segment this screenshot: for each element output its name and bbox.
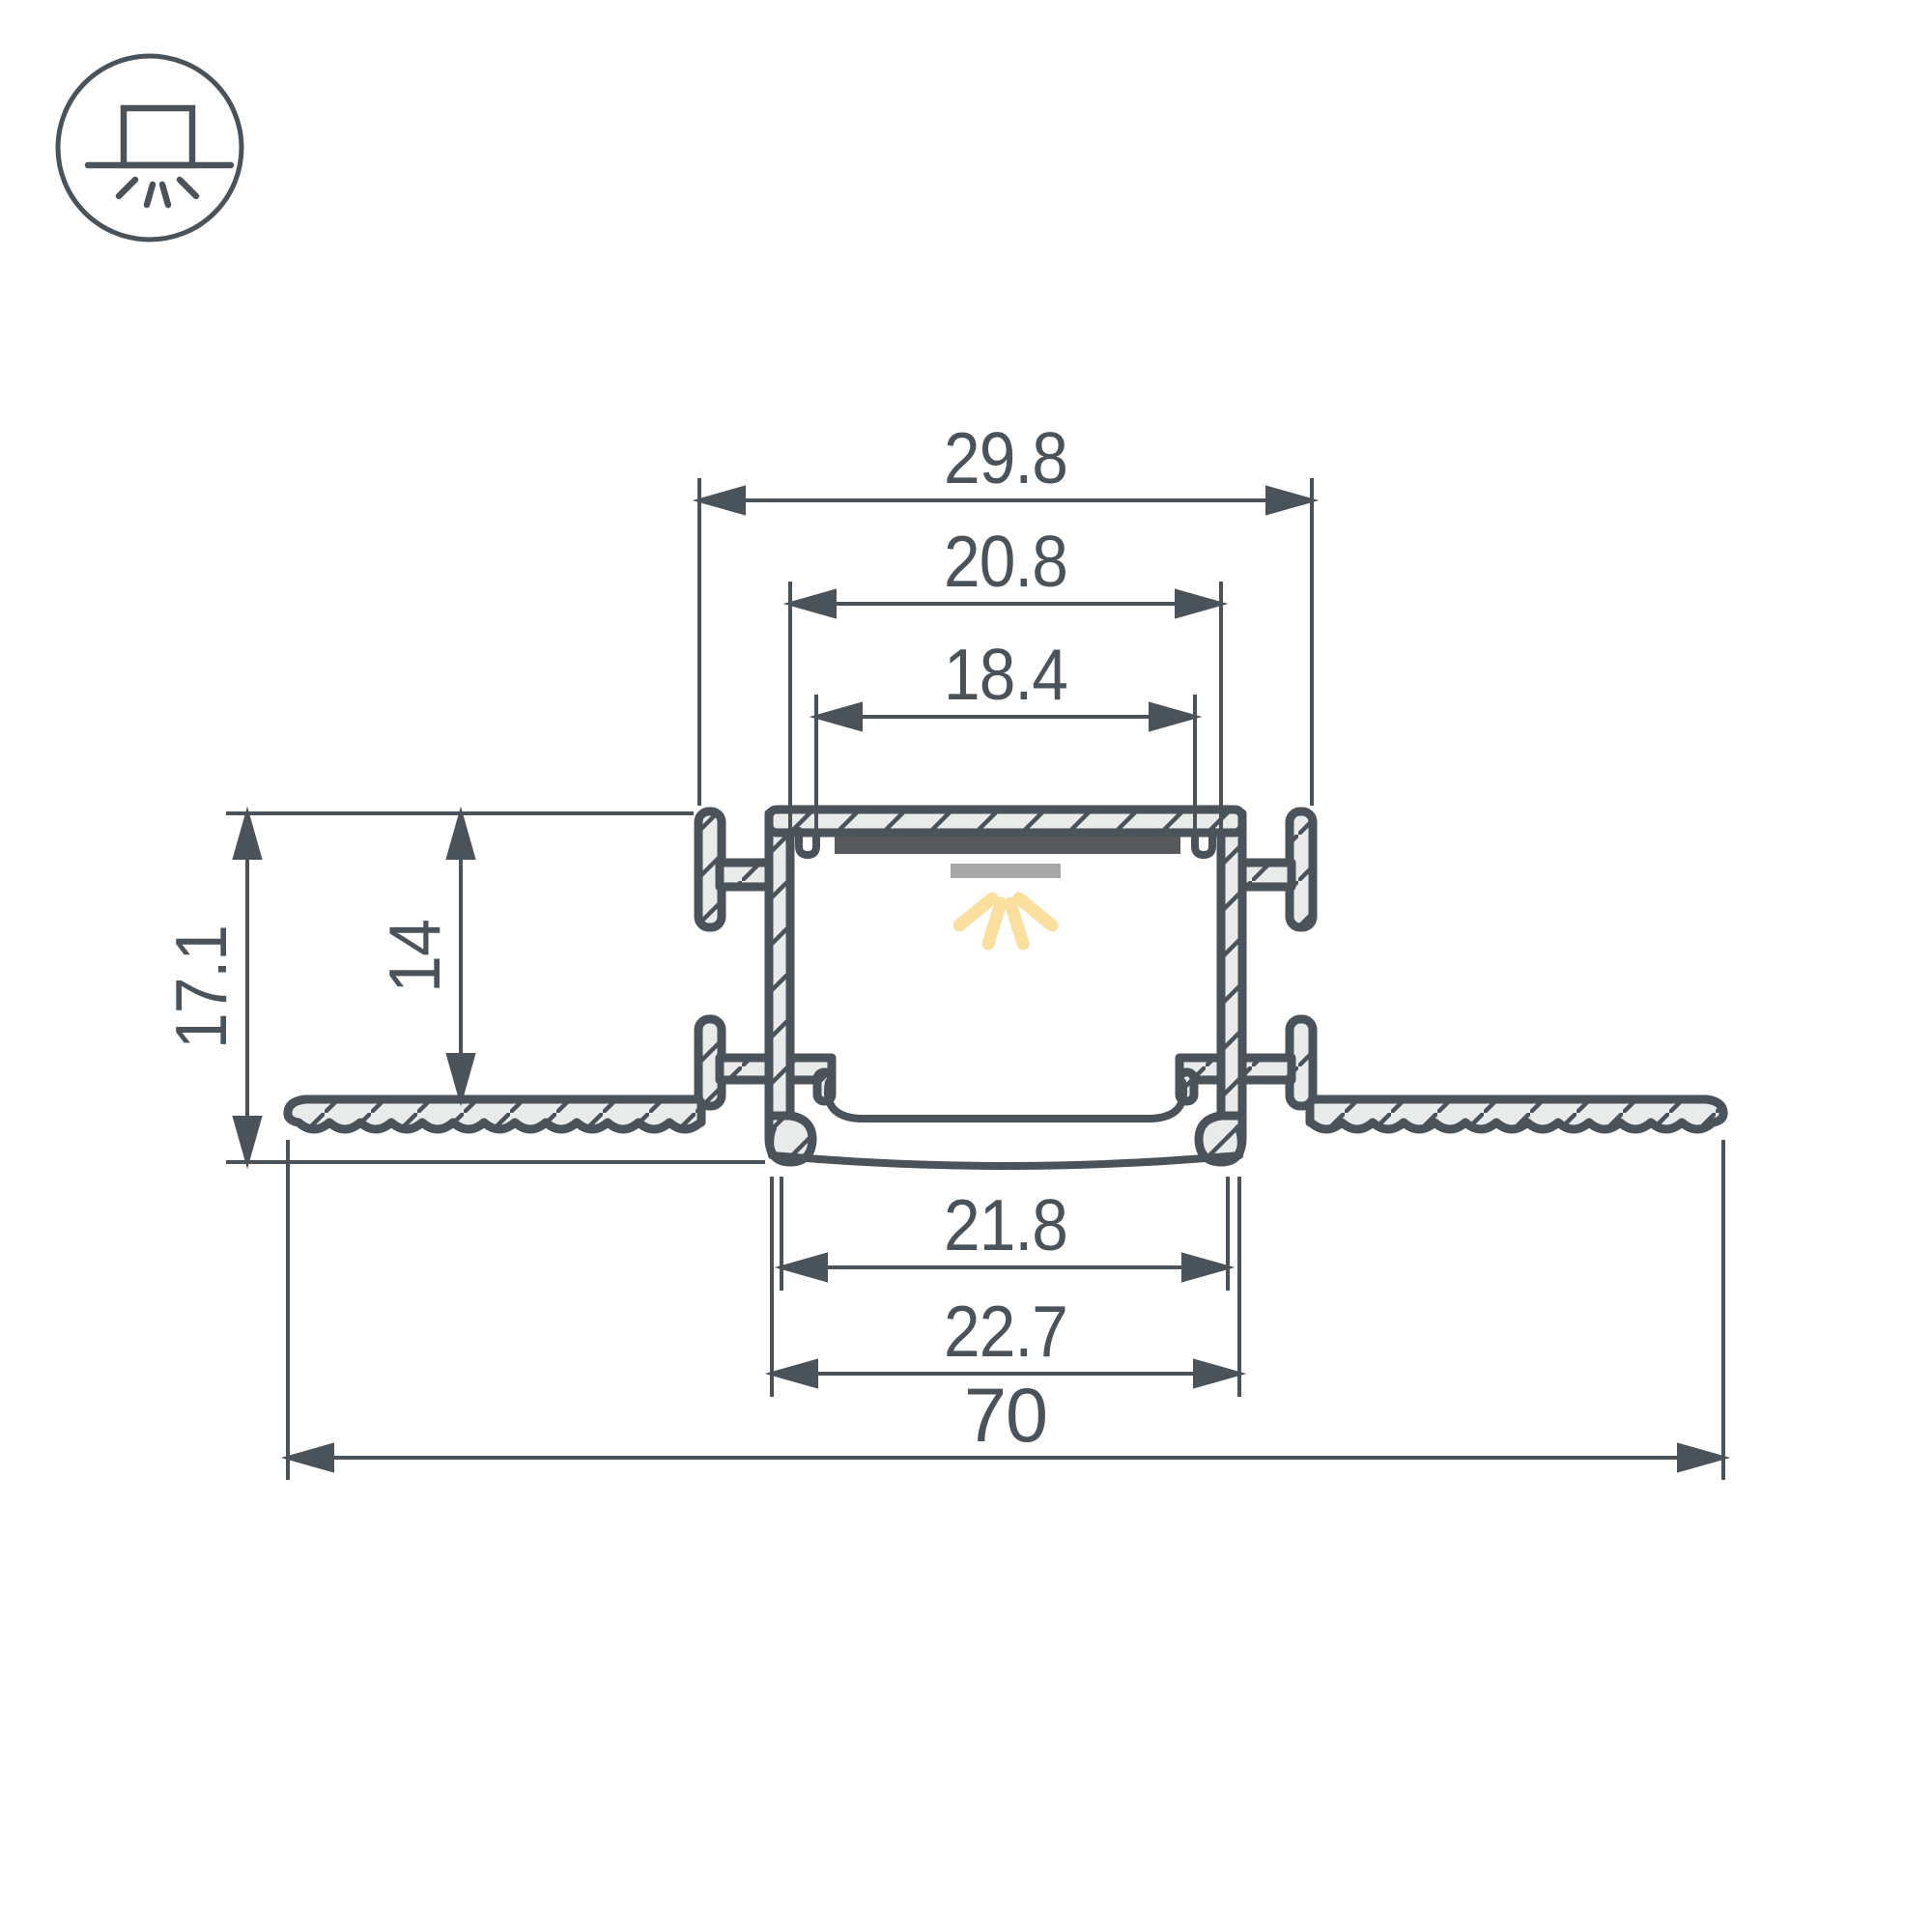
drawing-canvas: 29.8 20.8 18.4 17.1 14 21.8 22.7 70 (0, 0, 1932, 1932)
diffuser (770, 1082, 1241, 1166)
pcb-strip (835, 837, 1180, 854)
led-assembly (835, 837, 1180, 944)
label-recess-depth: 14 (374, 920, 455, 993)
label-lip-outer-width: 22.7 (944, 1291, 1067, 1372)
dimension-labels: 29.8 20.8 18.4 17.1 14 21.8 22.7 70 (160, 417, 1067, 1458)
icon-light-rays (119, 180, 196, 205)
led-strip (951, 864, 1061, 878)
label-inner-top-width: 20.8 (944, 521, 1067, 602)
aluminium-profile (288, 810, 1723, 1162)
plaster-flange-right (1310, 1099, 1723, 1129)
diffuser-edge-curl-left (770, 1128, 773, 1155)
label-overall-width: 70 (964, 1372, 1047, 1458)
icon-fixture-box (124, 108, 192, 165)
light-rays (959, 898, 1052, 944)
plaster-flange-left (288, 1099, 701, 1129)
clip-bridge-upper-left (720, 863, 771, 887)
diffuser-bottom-surface (772, 1155, 1239, 1166)
icon-circle (58, 56, 241, 240)
label-outer-top-width: 29.8 (944, 417, 1067, 498)
label-pcb-pocket-width: 18.4 (944, 634, 1067, 715)
profile-cross-section-drawing: 29.8 20.8 18.4 17.1 14 21.8 22.7 70 (0, 0, 1932, 1932)
diffuser-edge-curl-right (1238, 1128, 1241, 1155)
label-total-height: 17.1 (160, 925, 241, 1049)
top-flange (769, 810, 1242, 833)
channel-wall-right (1221, 813, 1242, 1121)
clip-bridge-upper-right (1240, 863, 1292, 887)
diffuser-top-surface (828, 1082, 1183, 1119)
recessed-mount-icon (58, 56, 241, 240)
label-opening-width: 21.8 (944, 1184, 1067, 1265)
channel-wall-left (769, 813, 790, 1121)
